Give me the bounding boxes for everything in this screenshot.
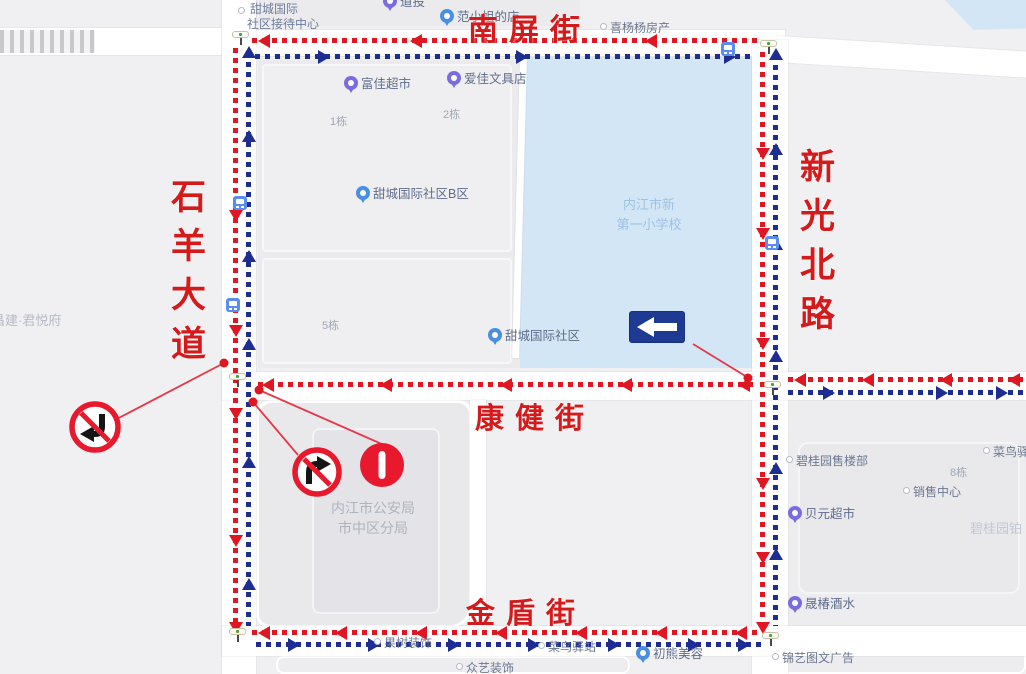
poi-pin-icon [344,76,358,90]
street-label-kangjian: 康健街 [475,395,595,437]
no-left-turn-sign [69,401,121,453]
flow-arrow-up-icon [242,338,256,350]
flow-arrow-up-icon [242,250,256,262]
poi-pin-icon [636,646,650,660]
traffic-light-icon [229,373,246,380]
traffic-light-icon [762,632,779,639]
flow-arrow-right-icon [288,638,300,652]
poi-dot-icon [786,456,793,463]
flow-arrow-right-icon [516,50,528,64]
poi-reception-line1: 甜城国际 [250,2,319,17]
poi-dot-icon [456,663,463,670]
poi-label: 富佳超市 [361,76,411,93]
flow-arrow-down-icon [756,148,770,160]
flow-arrow-left-icon [794,373,806,387]
poi-text-label: 8栋 [950,464,967,480]
bus-stop-icon[interactable] [721,42,735,56]
poi-pin-icon [788,596,802,610]
poi-reception[interactable]: 甜城国际 社区接待中心 [240,2,319,32]
flow-arrow-left-icon [335,626,347,640]
building-outline [262,258,512,364]
poi-text-label: 2栋 [443,106,460,122]
traffic-flow-line-blue [255,54,755,59]
flow-arrow-down-icon [229,325,243,337]
flow-arrow-down-icon [229,210,243,222]
poi-item[interactable]: 锦艺图文广告 [772,652,854,665]
flow-arrow-left-icon [500,378,512,392]
poi-item[interactable]: 销售中心 [903,486,961,499]
poi-item[interactable]: 众艺装饰 [456,662,514,674]
poi-item[interactable]: 富佳超市 [344,76,411,93]
water-corner [945,0,1026,30]
poi-label: 初熊美容 [653,646,703,663]
poi-label: 甜城国际社区B区 [373,186,469,203]
flow-arrow-left-icon [380,378,392,392]
police-label-line1: 内江市公安局 [303,498,443,518]
poi-label: 甜城国际社区 [505,328,580,345]
poi-dot-icon [983,447,990,454]
flow-arrow-up-icon [769,48,783,60]
poi-item[interactable]: 甜城国际社区 [488,328,580,345]
flow-arrow-up-icon [769,350,783,362]
poi-pin-icon [440,9,454,23]
flow-arrow-left-icon [645,34,657,48]
traffic-light-icon [764,381,781,388]
poi-label: 菜鸟驿站 [993,446,1026,459]
poi-item[interactable]: 果树装饰 [374,637,432,650]
traffic-flow-line-blue [773,55,778,626]
flow-arrow-left-icon [410,34,422,48]
poi-text-label: 碧桂园铂 [970,518,1022,537]
poi-label: 菜鸟驿站 [548,641,596,654]
poi-pin-icon [488,328,502,342]
one-way-left-sign [630,312,684,342]
school-label-line1: 内江市新 [594,195,704,215]
poi-label: 锦艺图文广告 [782,652,854,665]
poi-label: 晟椿酒水 [805,596,855,613]
poi-label: 爱佳文具店 [464,71,527,88]
poi-item[interactable]: 菜鸟驿站 [983,446,1026,459]
poi-dot-icon [374,638,381,645]
poi-reception-line2: 社区接待中心 [247,17,319,32]
flow-arrow-left-icon [620,378,632,392]
traffic-light-icon [229,628,246,635]
flow-arrow-right-icon [936,386,948,400]
street-label-nanping: 南屏街 [468,5,591,49]
flow-arrow-left-icon [655,626,667,640]
flow-arrow-up-icon [769,548,783,560]
poi-text-label: 5栋 [322,317,339,333]
poi-item[interactable]: 晟椿酒水 [788,596,855,613]
poi-pin-icon [356,186,370,200]
traffic-flow-line-red [788,377,1026,382]
flow-arrow-left-icon [1008,373,1020,387]
traffic-light-icon [760,40,777,47]
poi-text-label: 1栋 [330,113,347,129]
no-right-turn-sign [292,447,342,497]
poi-item[interactable]: 贝元超市 [788,506,855,523]
bus-stop-icon[interactable] [226,298,240,312]
street-label-shiyang: 石羊大道 [160,178,211,374]
flow-arrow-right-icon [318,50,330,64]
flow-arrow-down-icon [229,408,243,420]
poi-item[interactable]: 道投 [383,0,425,11]
poi-label: 众艺装饰 [466,662,514,674]
poi-dot-icon [238,7,245,14]
poi-text-label: 昌建·君悦府 [0,310,61,329]
flow-arrow-left-icon [862,373,874,387]
flow-arrow-right-icon [823,386,835,400]
flow-arrow-left-icon [738,378,750,392]
road-northeast [776,36,1026,78]
flow-arrow-up-icon [242,130,256,142]
poi-item[interactable]: 甜城国际社区B区 [356,186,469,203]
poi-pin-icon [383,0,397,8]
flow-arrow-right-icon [448,638,460,652]
flow-arrow-up-icon [769,143,783,155]
school-label-line2: 第一小学校 [594,215,704,235]
school-label: 内江市新 第一小学校 [594,195,704,235]
poi-label: 贝元超市 [805,506,855,523]
bus-stop-icon[interactable] [765,236,779,250]
flow-arrow-down-icon [756,338,770,350]
flow-arrow-right-icon [608,638,620,652]
flow-arrow-right-icon [738,638,750,652]
flow-arrow-left-icon [262,378,274,392]
poi-label: 碧桂园售楼部 [796,455,868,468]
poi-pin-icon [788,506,802,520]
traffic-light-icon [232,31,249,38]
flow-arrow-down-icon [756,552,770,564]
flow-arrow-up-icon [242,46,256,58]
railway-crossing [0,30,95,53]
poi-label: 果树装饰 [384,637,432,650]
flow-arrow-left-icon [258,626,270,640]
flow-arrow-up-icon [242,578,256,590]
poi-dot-icon [538,642,545,649]
flow-arrow-right-icon [996,386,1008,400]
poi-pin-icon [447,71,461,85]
bus-stop-icon[interactable] [233,196,247,210]
flow-arrow-up-icon [242,456,256,468]
poi-item[interactable]: 菜鸟驿站 [538,641,596,654]
flow-arrow-up-icon [769,462,783,474]
map-canvas[interactable]: 南屏街 新光北路 石羊大道 康健街 金盾街 内江市新 第一小学校 内江市公安局 … [0,0,1026,674]
poi-item[interactable]: 初熊美容 [636,646,703,663]
poi-label: 道投 [400,0,425,11]
poi-dot-icon [903,487,910,494]
police-label: 内江市公安局 市中区分局 [303,498,443,538]
building-outline [276,656,630,674]
poi-item[interactable]: 爱佳文具店 [447,71,527,88]
poi-label: 喜杨杨房产 [610,22,670,35]
no-entry-sign [358,441,406,489]
flow-arrow-down-icon [756,478,770,490]
poi-item[interactable]: 碧桂园售楼部 [786,455,868,468]
police-label-line2: 市中区分局 [303,518,443,538]
poi-item[interactable]: 喜杨杨房产 [600,22,670,35]
flow-arrow-left-icon [258,34,270,48]
poi-dot-icon [772,653,779,660]
flow-arrow-down-icon [229,535,243,547]
poi-dot-icon [600,23,607,30]
poi-label: 销售中心 [913,486,961,499]
street-label-jindun: 金盾街 [466,590,586,632]
flow-arrow-left-icon [940,373,952,387]
street-label-xinguang: 新光北路 [789,148,840,344]
